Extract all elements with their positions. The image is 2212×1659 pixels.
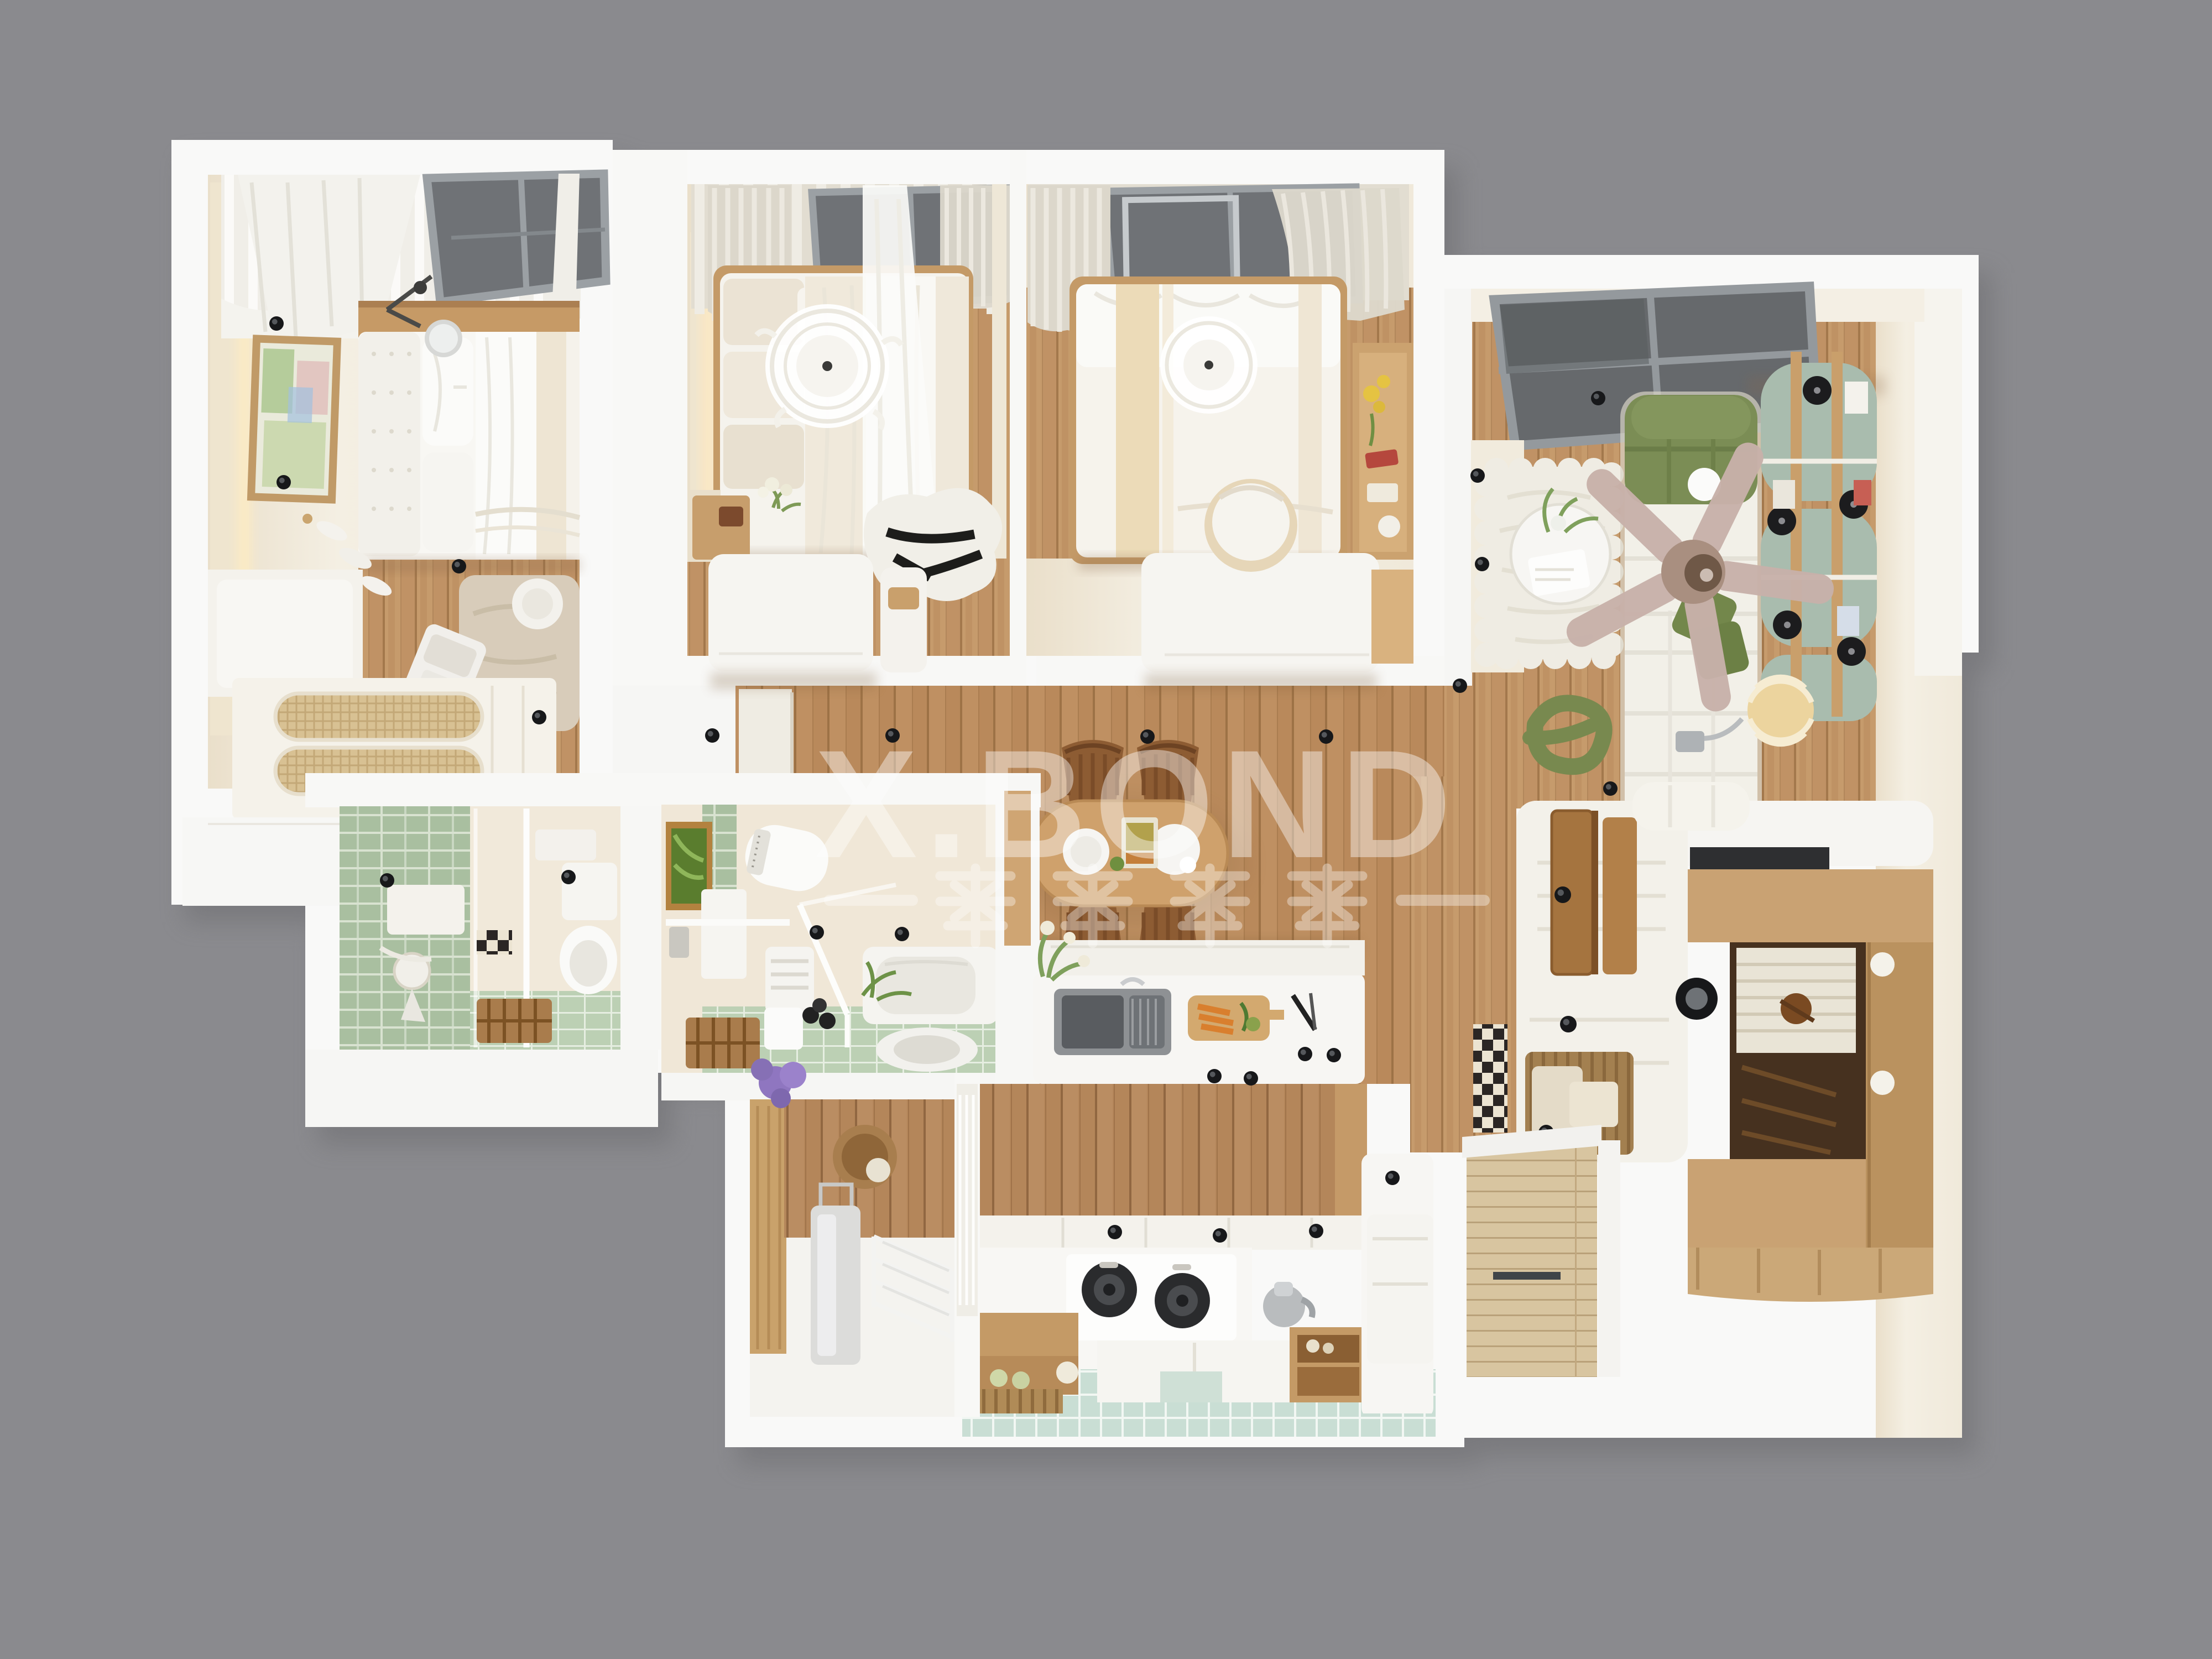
svg-text:X.BOND: X.BOND <box>815 718 1459 890</box>
